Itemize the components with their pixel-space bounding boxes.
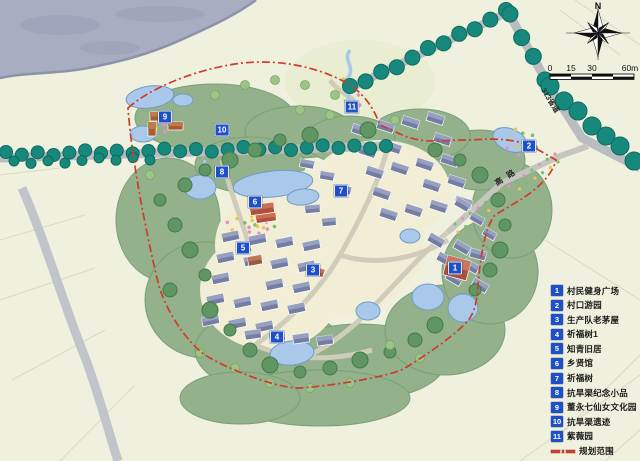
legend-boundary-label: 规划范围 [579, 445, 614, 457]
legend-item-4: 4祈福树1 [551, 329, 640, 340]
legend-item-9: 9董永七仙女文化园 [551, 402, 640, 413]
legend-items: 1村民健身广场2村口游园3生产队老茅屋4祈福树15知青旧居6乡贤馆7祈福树8抗旱… [551, 285, 640, 442]
scale-tick-30: 30 [587, 63, 597, 73]
map-marker-10: 10 [215, 124, 230, 137]
scale-tick-0: 0 [548, 63, 553, 73]
legend-number-badge: 4 [551, 329, 563, 340]
legend-item-label: 抗旱渠纪念小品 [567, 387, 628, 399]
legend-boundary-row: 规划范围 [551, 446, 640, 457]
legend-item-label: 村民健身广场 [567, 285, 619, 297]
legend-item-1: 1村民健身广场 [551, 285, 640, 296]
map-marker-3: 3 [306, 264, 320, 277]
legend-item-label: 村口游园 [567, 299, 602, 311]
legend: 1村民健身广场2村口游园3生产队老茅屋4祈福树15知青旧居6乡贤馆7祈福树8抗旱… [551, 285, 640, 460]
legend-item-10: 10抗旱渠遗迹 [551, 416, 640, 427]
map-marker-4: 4 [270, 331, 284, 344]
map-marker-2: 2 [522, 140, 536, 153]
legend-item-label: 抗旱渠遗迹 [567, 416, 611, 428]
legend-item-5: 5知青旧居 [551, 343, 640, 354]
legend-number-badge: 7 [551, 373, 563, 384]
legend-number-badge: 8 [551, 387, 563, 398]
legend-number-badge: 10 [551, 416, 563, 427]
legend-item-11: 11紫薇园 [551, 431, 640, 442]
legend-number-badge: 5 [551, 343, 563, 354]
legend-item-label: 紫薇园 [567, 430, 593, 442]
legend-item-6: 6乡贤馆 [551, 358, 640, 369]
map-marker-6: 6 [248, 196, 262, 209]
legend-number-badge: 9 [551, 402, 563, 413]
legend-item-7: 7祈福树 [551, 373, 640, 384]
legend-item-label: 知青旧居 [567, 343, 602, 355]
boundary-line-icon [551, 450, 575, 453]
scale-tick-15: 15 [566, 63, 576, 73]
map-marker-1: 1 [448, 262, 462, 275]
map-marker-8: 8 [215, 166, 229, 179]
legend-number-badge: 3 [551, 314, 563, 325]
legend-item-label: 董永七仙女文化园 [567, 401, 637, 413]
legend-item-label: 乡贤馆 [567, 357, 593, 369]
scale-tick-60: 60m [622, 63, 639, 73]
map-marker-9: 9 [158, 111, 172, 124]
map-marker-11: 11 [345, 101, 359, 114]
legend-item-3: 3生产队老茅屋 [551, 314, 640, 325]
legend-item-8: 8抗旱渠纪念小品 [551, 387, 640, 398]
site-plan-map: 313省道 高路 N 0 15 30 60m 1234567891011 1村民… [0, 0, 640, 461]
legend-item-label: 祈福树1 [567, 328, 598, 340]
scale-bar-blocks [550, 74, 634, 79]
legend-item-2: 2村口游园 [551, 300, 640, 311]
legend-item-label: 祈福树 [567, 372, 593, 384]
map-marker-7: 7 [334, 185, 348, 198]
legend-item-label: 生产队老茅屋 [567, 314, 619, 326]
legend-number-badge: 11 [551, 431, 563, 442]
legend-number-badge: 1 [551, 285, 563, 296]
terrain-drawing: 313省道 高路 N 0 15 30 60m [0, 0, 640, 461]
legend-number-badge: 2 [551, 300, 563, 311]
legend-number-badge: 6 [551, 358, 563, 369]
map-marker-5: 5 [236, 242, 250, 255]
north-label: N [595, 1, 602, 11]
